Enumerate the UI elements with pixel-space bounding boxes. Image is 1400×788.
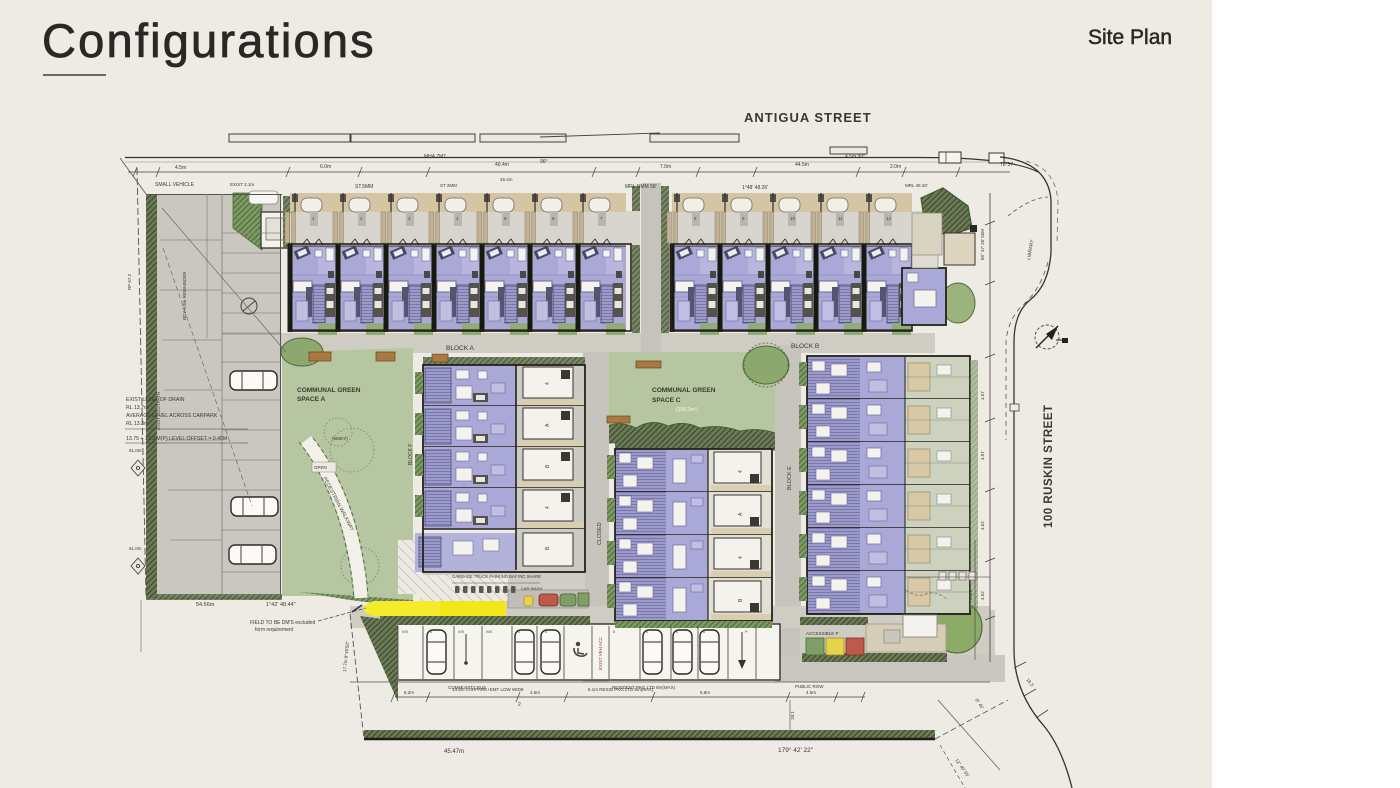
svg-text:4.57: 4.57 xyxy=(980,451,985,460)
svg-text:46.4m: 46.4m xyxy=(500,177,513,182)
svg-text:44.5m: 44.5m xyxy=(795,162,809,168)
svg-text:96°: 96° xyxy=(540,159,548,165)
svg-text:COMMUNAL GREEN: COMMUNAL GREEN xyxy=(652,387,716,394)
svg-text:MRL 46 26': MRL 46 26' xyxy=(905,183,928,188)
svg-text:179° 42' 22": 179° 42' 22" xyxy=(778,746,814,754)
svg-text:4.5m: 4.5m xyxy=(806,690,816,695)
svg-text:14.6m CARPARK+EMT LOW WIDE: 14.6m CARPARK+EMT LOW WIDE xyxy=(452,687,524,692)
svg-text:(558m²): (558m²) xyxy=(332,436,348,441)
svg-text:RP 67.2: RP 67.2 xyxy=(127,273,132,290)
svg-text:W5: W5 xyxy=(458,629,465,634)
svg-text:13.75 + 13.3 M(P) LEVEL OFFSET: 13.75 + 13.3 M(P) LEVEL OFFSET = 0.45M xyxy=(126,436,227,442)
svg-text:RL 13.7m: RL 13.7m xyxy=(126,405,148,411)
svg-text:89° 47' 26' 55M: 89° 47' 26' 55M xyxy=(980,229,985,260)
svg-text:SPACE C: SPACE C xyxy=(652,397,681,404)
svg-text:6.2m: 6.2m xyxy=(404,690,414,695)
svg-text:P: P xyxy=(745,629,748,634)
svg-text:5.8m: 5.8m xyxy=(700,690,710,695)
svg-text:MRL NMM 58': MRL NMM 58' xyxy=(625,184,657,190)
svg-text:18.3: 18.3 xyxy=(1025,677,1035,687)
svg-text:17.7m 8°45′50″: 17.7m 8°45′50″ xyxy=(342,641,350,672)
svg-text:form requirement: form requirement xyxy=(255,627,294,633)
svg-text:11: 11 xyxy=(838,216,843,221)
svg-text:4: 4 xyxy=(545,506,551,509)
svg-text:(358.2m²): (358.2m²) xyxy=(676,407,698,413)
svg-text:SMALL VEHICLE: SMALL VEHICLE xyxy=(155,182,195,188)
svg-text:GARBAGE TRUCK PARKING BAY INC: GARBAGE TRUCK PARKING BAY INC SHARE xyxy=(452,574,541,579)
svg-text:12: 12 xyxy=(886,216,892,221)
svg-text:BLOCK B: BLOCK B xyxy=(791,343,819,350)
svg-text:10: 10 xyxy=(790,216,796,221)
svg-text:ACCESSIBLE P: ACCESSIBLE P xyxy=(806,631,839,636)
svg-text:CLOSED: CLOSED xyxy=(597,522,603,545)
svg-text:BLOCK A: BLOCK A xyxy=(446,345,474,352)
svg-text:ANTIGUA STREET: ANTIGUA STREET xyxy=(744,110,872,125)
svg-text:18.1: 18.1 xyxy=(790,711,795,720)
svg-text:W5: W5 xyxy=(402,629,409,634)
svg-text:ST 2MM: ST 2MM xyxy=(440,183,457,188)
svg-text:EXIST 2.1m: EXIST 2.1m xyxy=(230,182,254,187)
svg-text:7.0m: 7.0m xyxy=(660,164,671,170)
svg-text:1°48' 48.26': 1°48' 48.26' xyxy=(742,185,768,191)
svg-text:RL 13.3m: RL 13.3m xyxy=(126,421,148,427)
svg-text:COMMUNAL GREEN: COMMUNAL GREEN xyxy=(297,387,361,394)
svg-text:6.1m: 6.1m xyxy=(968,590,973,600)
svg-text:SPACE A: SPACE A xyxy=(297,396,325,403)
svg-text:4: 4 xyxy=(738,470,744,473)
svg-text:EXIST LEVEL OF DRAIN: EXIST LEVEL OF DRAIN xyxy=(126,397,185,403)
svg-text:6.0m: 6.0m xyxy=(320,164,331,170)
svg-text:PUBLIC ROW: PUBLIC ROW xyxy=(795,684,824,689)
svg-text:12° 40' 55': 12° 40' 55' xyxy=(954,758,970,778)
svg-text:4: 4 xyxy=(738,556,744,559)
svg-text:4.52: 4.52 xyxy=(980,591,985,600)
svg-text:8° 45': 8° 45' xyxy=(974,698,985,710)
svg-text:100 RUSKIN STREET: 100 RUSKIN STREET xyxy=(1043,404,1055,528)
svg-text:54.56m: 54.56m xyxy=(196,602,215,608)
svg-text:4.57: 4.57 xyxy=(980,391,985,400)
svg-text:ST.5MM: ST.5MM xyxy=(355,184,373,190)
svg-text:40.4m: 40.4m xyxy=(495,162,509,168)
svg-text:2.0m: 2.0m xyxy=(890,164,901,170)
svg-text:2: 2 xyxy=(518,702,521,708)
svg-text:61.0m: 61.0m xyxy=(129,546,142,551)
svg-text:BLOCK F: BLOCK F xyxy=(408,444,414,465)
svg-text:4.5m: 4.5m xyxy=(530,690,540,695)
svg-text:CAR WASH: CAR WASH xyxy=(521,586,543,591)
svg-text:AVERAGE LEVEL ACROSS CARPARK: AVERAGE LEVEL ACROSS CARPARK xyxy=(126,413,218,419)
svg-text:EXIST VEH ACC: EXIST VEH ACC xyxy=(598,637,603,670)
svg-text:61.0m: 61.0m xyxy=(129,448,142,453)
svg-text:FIELD TO BE DM'S excluded: FIELD TO BE DM'S excluded xyxy=(250,620,315,626)
svg-text:78°57: 78°57 xyxy=(1000,162,1013,168)
svg-text:4.5m: 4.5m xyxy=(175,165,186,171)
svg-text:W5: W5 xyxy=(486,629,493,634)
svg-text:45.47m: 45.47m xyxy=(444,749,464,755)
svg-text:BLOCK E: BLOCK E xyxy=(787,466,793,490)
svg-text:BDY 8.5m REMAINDER: BDY 8.5m REMAINDER xyxy=(182,271,187,320)
svg-text:LIBRARY: LIBRARY xyxy=(1026,238,1036,260)
svg-text:4: 4 xyxy=(545,382,551,385)
svg-text:6.1m RESID PKG LTD 8m(MAX): 6.1m RESID PKG LTD 8m(MAX) xyxy=(588,687,654,692)
svg-text:4.52: 4.52 xyxy=(980,521,985,530)
svg-text:OPEN: OPEN xyxy=(314,465,327,470)
svg-text:1°42' 48.44": 1°42' 48.44" xyxy=(266,602,296,608)
